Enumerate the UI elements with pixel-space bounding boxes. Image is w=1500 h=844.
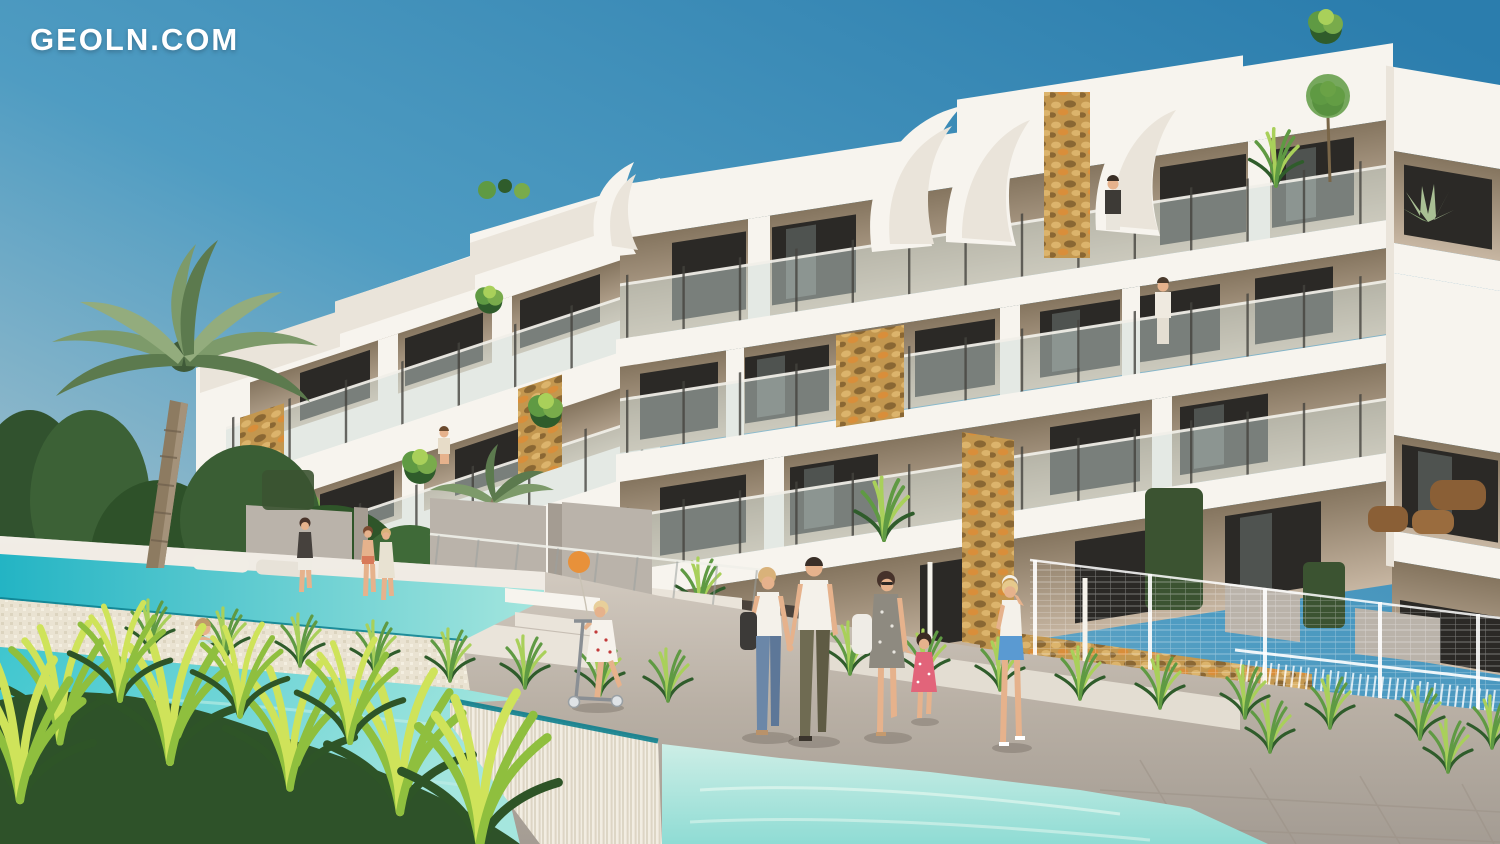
building-corner-section <box>1386 66 1500 676</box>
render-canvas: GEOLN.COM <box>0 0 1500 844</box>
scene <box>0 0 1500 844</box>
rooftop-stone-column <box>1044 92 1090 258</box>
watermark-logo: GEOLN.COM <box>30 22 239 58</box>
